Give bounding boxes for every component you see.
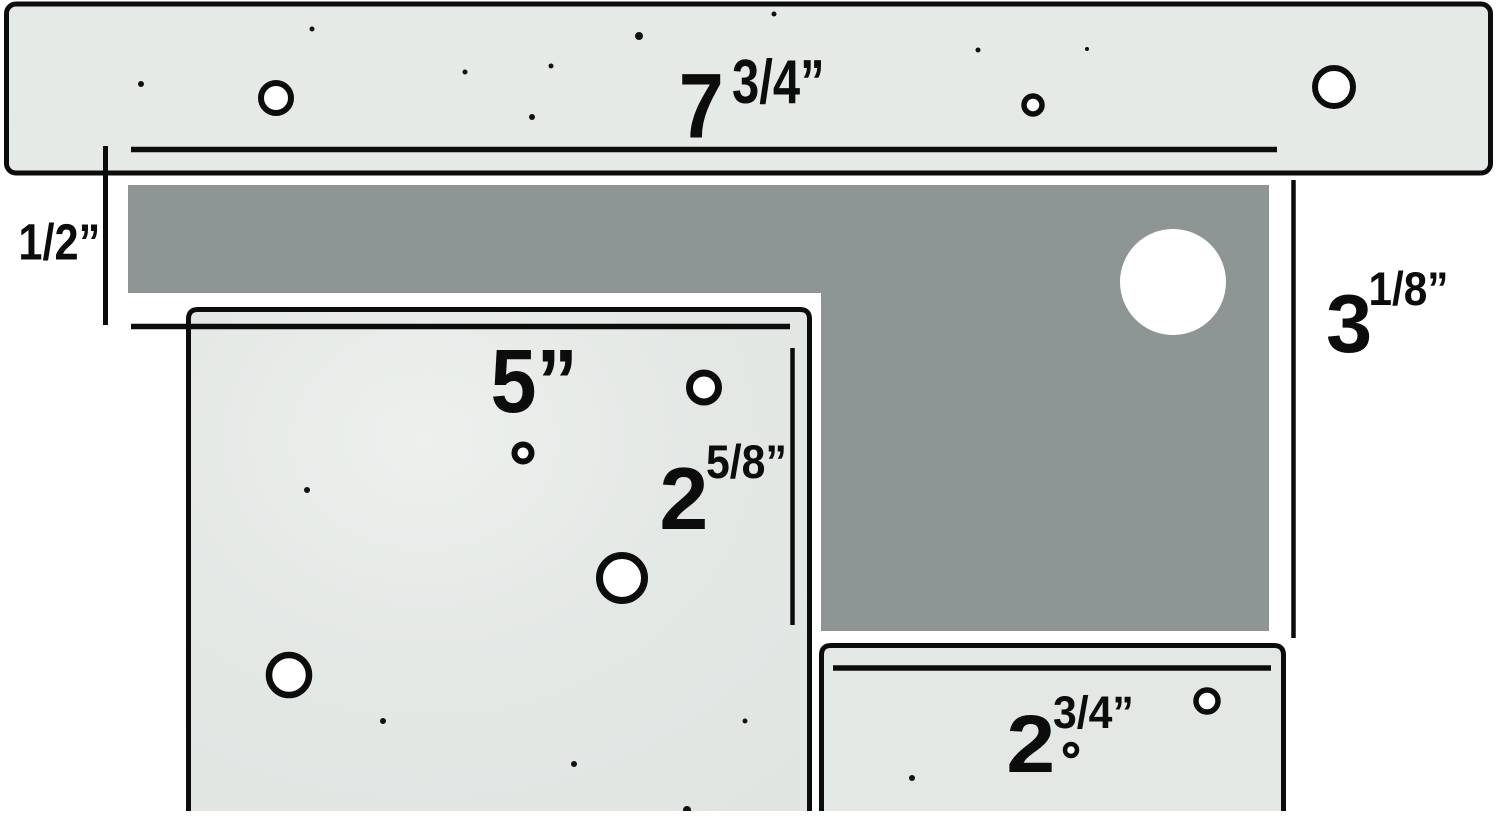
svg-text:5/8”: 5/8” [706, 435, 787, 488]
svg-text:5”: 5” [491, 332, 578, 432]
svg-text:1/8”: 1/8” [1369, 264, 1449, 316]
svg-text:3/4”: 3/4” [1053, 688, 1134, 738]
svg-text:2: 2 [1006, 698, 1055, 790]
svg-text:1/2”: 1/2” [18, 214, 100, 271]
svg-text:3: 3 [1326, 277, 1372, 370]
svg-text:7: 7 [679, 56, 724, 158]
svg-text:3/4”: 3/4” [732, 46, 825, 116]
svg-text:2: 2 [659, 449, 708, 548]
